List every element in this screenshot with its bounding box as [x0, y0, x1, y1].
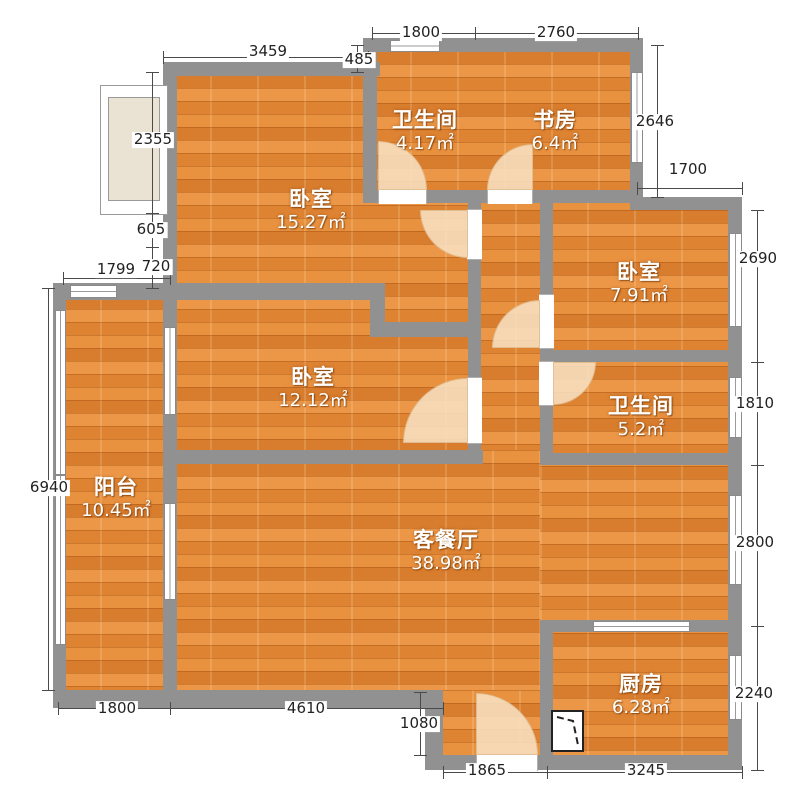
door-threshold: [467, 209, 482, 260]
dim-right-1700-label: 1700: [667, 162, 709, 178]
dim-bottom-1080-label: 1080: [398, 716, 440, 732]
dim-top-485-tick: [351, 72, 364, 73]
dim-bottom-1865-label: 1865: [466, 763, 508, 779]
wall: [163, 450, 483, 464]
bathroom-top-window: [390, 40, 440, 52]
dim-bottom-1865-tick: [443, 766, 444, 779]
dim-right-1700-tick: [637, 182, 638, 195]
dim-bottom-1080-tick: [414, 692, 427, 693]
room-area-bathroom-top: 4.17㎡: [396, 129, 454, 155]
dim-bottom-1800-tick: [58, 702, 59, 715]
dim-right-2240-tick: [751, 626, 764, 627]
dim-left-2355-label: 2355: [132, 132, 174, 148]
floor-plan-canvas: 1800276034594852646170026901810280022406…: [0, 0, 800, 800]
dim-top-2760-tick: [638, 27, 639, 40]
dim-right-1700-tick: [742, 182, 743, 195]
wall: [540, 350, 742, 362]
dim-bottom-3245-tick: [547, 766, 548, 779]
dim-top-3459-label: 3459: [247, 44, 289, 60]
door-threshold: [467, 377, 482, 444]
room-area-balcony: 10.45㎡: [81, 496, 151, 522]
dim-left-720-tick: [146, 288, 159, 289]
room-area-bedroom-right: 7.91㎡: [610, 281, 668, 307]
door-threshold: [539, 294, 554, 349]
dim-bottom-4610-label: 4610: [285, 701, 327, 717]
room-area-bathroom-right: 5.2㎡: [618, 415, 665, 441]
dim-left-6940-label: 6940: [28, 480, 70, 496]
kitchen-sink-icon: [551, 710, 584, 752]
dim-right-2646-tick: [651, 197, 664, 198]
dim-right-2240-label: 2240: [733, 686, 775, 702]
dim-bottom-3245-tick: [742, 766, 743, 779]
dim-right-1810-line: [757, 362, 758, 465]
balcony-top-window: [70, 285, 117, 298]
room-area-kitchen: 6.28㎡: [612, 693, 670, 719]
room-area-study: 6.4㎡: [532, 129, 579, 155]
floor-living-left: [163, 450, 540, 708]
dim-top-3459-tick: [163, 51, 164, 64]
dim-left-605-tick: [146, 213, 159, 214]
dim-right-2800-tick: [751, 465, 764, 466]
dim-left-1799-label: 1799: [95, 262, 137, 278]
room-area-bedroom-mid: 12.12㎡: [278, 386, 348, 412]
dim-top-1800-tick: [372, 27, 373, 40]
dim-bottom-1800-label: 1800: [96, 701, 138, 717]
kitchen-top-window: [593, 621, 690, 632]
dim-right-2690-label: 2690: [737, 251, 779, 267]
balcony-bedroom-window: [164, 327, 176, 415]
balcony-left-window-1: [55, 310, 66, 475]
dim-bottom-4610-tick: [443, 702, 444, 715]
dim-left-720-label: 720: [140, 259, 173, 275]
dim-top-2760-label: 2760: [535, 25, 577, 41]
dim-right-1700-line: [637, 188, 742, 189]
dim-top-2760-tick: [475, 27, 476, 40]
dim-bottom-3245-label: 3245: [625, 763, 667, 779]
dim-top-1800-label: 1800: [400, 25, 442, 41]
balcony-left-window-2: [55, 475, 66, 645]
wall: [370, 322, 470, 337]
dim-top-485-label: 485: [343, 52, 376, 68]
room-area-bedroom-large: 15.27㎡: [276, 208, 346, 234]
bedroom-right-window: [729, 233, 742, 327]
dim-right-2240-tick: [751, 770, 764, 771]
wall: [630, 197, 742, 210]
dim-left-605-label: 605: [135, 222, 168, 238]
dim-right-2690-line: [757, 210, 758, 362]
dim-right-2646-tick: [651, 45, 664, 46]
door-threshold: [378, 189, 427, 204]
dim-right-2800-label: 2800: [734, 535, 776, 551]
dim-left-6940-tick: [42, 288, 55, 289]
balcony-living-window: [164, 503, 176, 600]
dim-left-1799-tick: [63, 272, 64, 285]
dim-bottom-1080-tick: [414, 755, 427, 756]
room-area-living-dining: 38.98㎡: [411, 549, 481, 575]
dim-left-1799-line: [63, 278, 170, 279]
dim-right-1810-tick: [751, 362, 764, 363]
door-threshold: [539, 361, 554, 406]
floor-living-right: [540, 453, 742, 632]
dim-right-2646-label: 2646: [634, 114, 676, 130]
dim-top-485-tick: [351, 45, 364, 46]
wall: [540, 453, 742, 465]
dim-left-720-tick: [146, 247, 159, 248]
dim-left-6940-tick: [42, 690, 55, 691]
dim-right-1810-label: 1810: [734, 396, 776, 412]
wall: [163, 283, 385, 300]
door-threshold: [487, 189, 533, 204]
dim-bottom-4610-tick: [170, 702, 171, 715]
dim-right-2690-tick: [751, 210, 764, 211]
dim-left-2355-tick: [146, 72, 159, 73]
